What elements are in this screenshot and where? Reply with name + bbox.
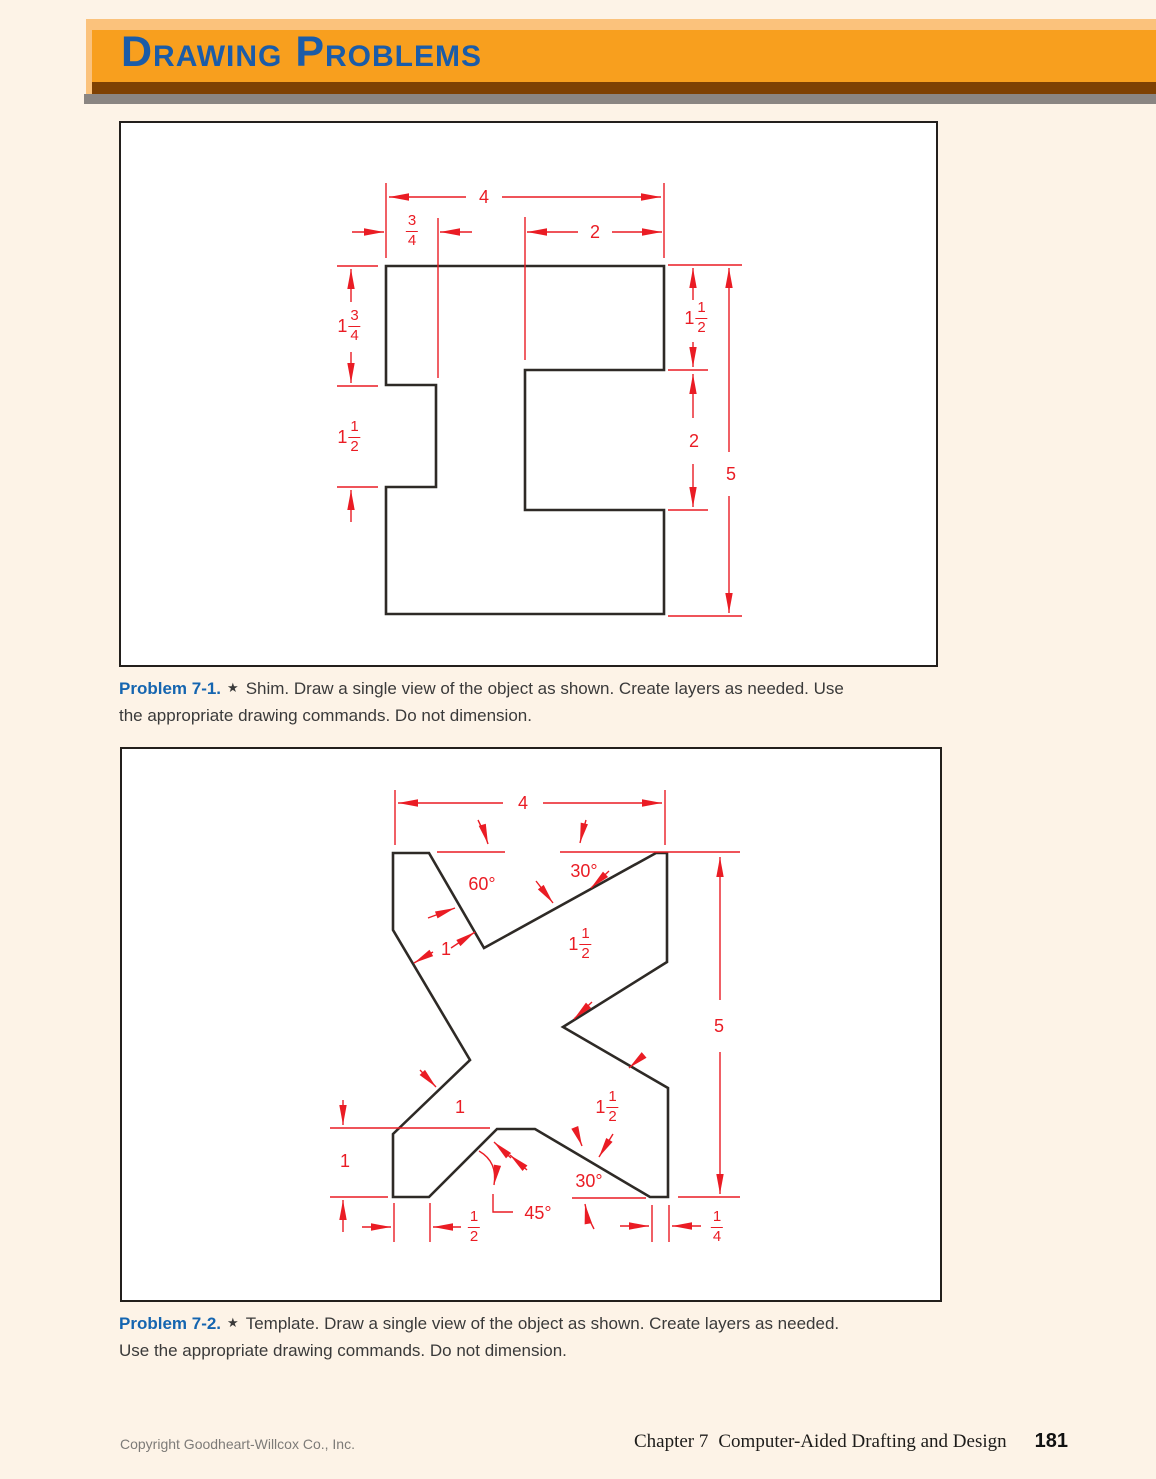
star-icon: ★: [227, 680, 239, 695]
fig2-dim-one-half-low: 1 12: [595, 1089, 618, 1125]
fig2-dim-angle-30-top: 30°: [570, 862, 597, 880]
fig1-dim-one-half-right: 1 12: [684, 300, 707, 336]
fig2-dim-width-4: 4: [518, 794, 528, 812]
fig1-dim-one-three-quarter: 1 34: [337, 308, 360, 344]
fig1-dim-two-top: 2: [590, 223, 600, 241]
caption-label: Problem 7-2.: [119, 1314, 221, 1333]
caption-text-line2: the appropriate drawing commands. Do not…: [119, 706, 532, 725]
fig2-dim-one-left: 1: [340, 1152, 350, 1170]
page-title: Drawing Problems: [121, 30, 482, 74]
footer-copyright: Copyright Goodheart-Willcox Co., Inc.: [120, 1436, 355, 1452]
page-number: 181: [1035, 1430, 1068, 1453]
caption-label: Problem 7-1.: [119, 679, 221, 698]
fig2-dim-angle-45: 45°: [524, 1204, 551, 1222]
fig2-dim-five: 5: [714, 1017, 724, 1035]
banner-shadow: [84, 94, 1156, 104]
banner-left-bevel: [86, 19, 92, 94]
caption-text-line1: Template. Draw a single view of the obje…: [246, 1314, 839, 1333]
fig1-dim-width-4: 4: [479, 188, 489, 206]
footer-chapter-number: Chapter 7: [634, 1431, 708, 1453]
caption-text-line1: Shim. Draw a single view of the object a…: [246, 679, 844, 698]
caption-problem-7-1: Problem 7-1.★Shim. Draw a single view of…: [119, 676, 959, 729]
footer-chapter-title: Computer-Aided Drafting and Design: [718, 1431, 1006, 1453]
fig1-dim-three-quarter: 34: [406, 213, 418, 249]
fig2-dim-one-half-mid: 1 12: [568, 926, 591, 962]
figure-box-problem-7-1: [119, 121, 938, 667]
fig2-dim-half: 12: [468, 1209, 480, 1245]
caption-text-line2: Use the appropriate drawing commands. Do…: [119, 1341, 567, 1360]
fig1-dim-two-right: 2: [689, 432, 699, 450]
fig2-dim-one-horizontal: 1: [455, 1098, 465, 1116]
fig2-dim-angle-30-bottom: 30°: [575, 1172, 602, 1190]
fig2-dim-quarter: 14: [711, 1209, 723, 1245]
caption-problem-7-2: Problem 7-2.★Template. Draw a single vie…: [119, 1311, 959, 1364]
fig2-dim-angle-60: 60°: [468, 875, 495, 893]
footer-chapter-info: Chapter 7 Computer-Aided Drafting and De…: [634, 1430, 1068, 1453]
star-icon: ★: [227, 1315, 239, 1330]
fig2-dim-one-top: 1: [441, 940, 451, 958]
fig1-dim-one-half-left: 1 12: [337, 419, 360, 455]
fig1-dim-five: 5: [726, 465, 736, 483]
